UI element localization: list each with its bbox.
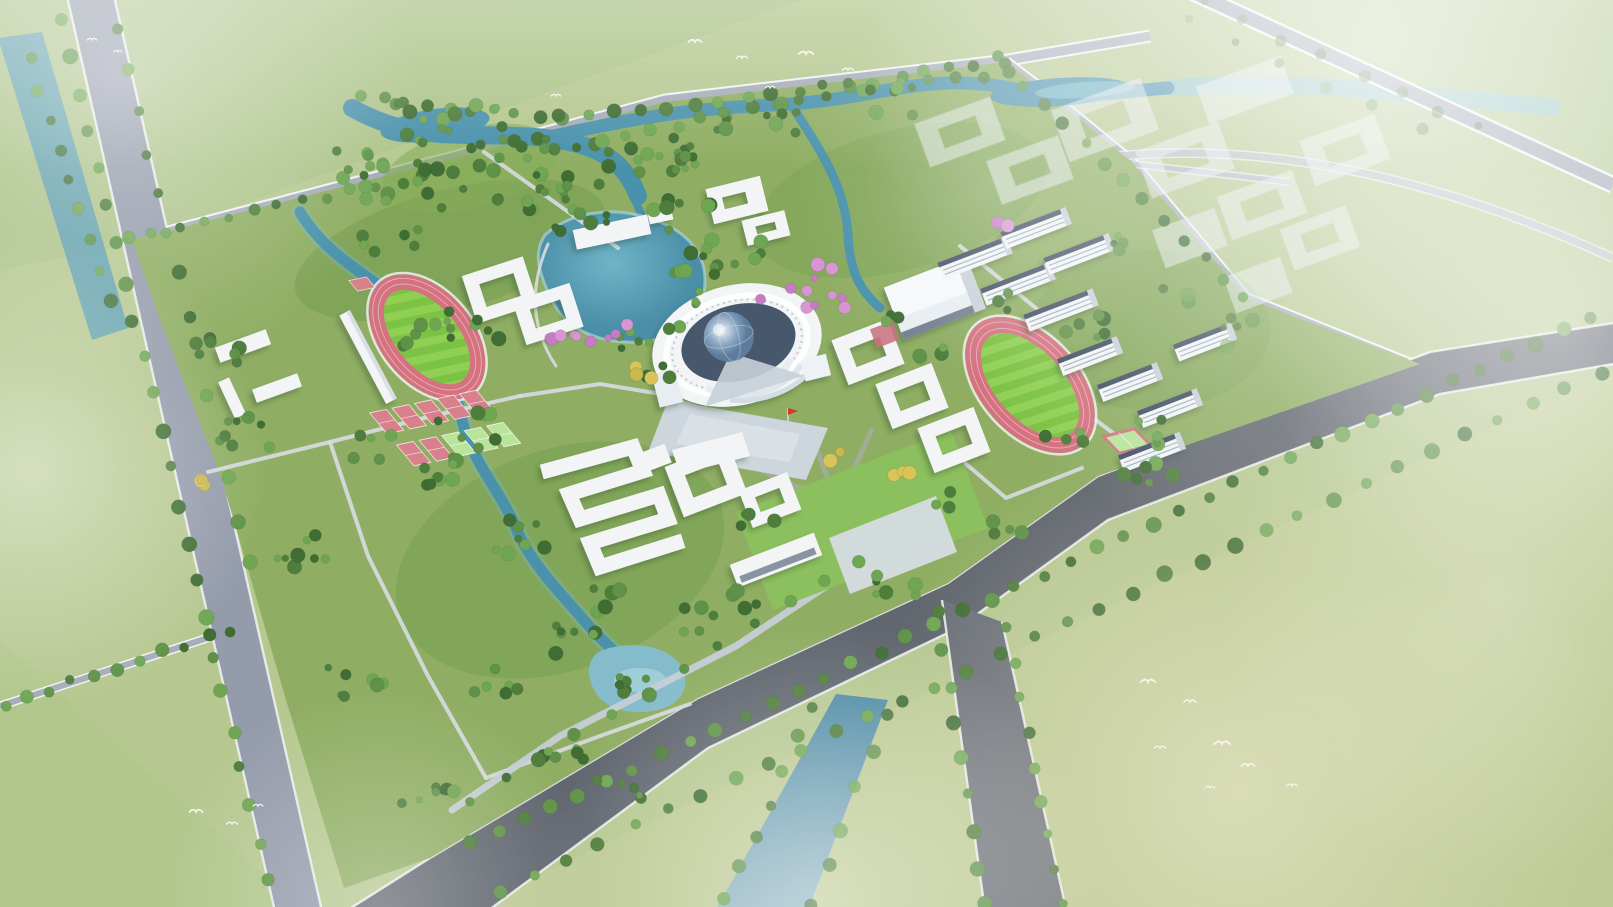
tree [419, 463, 429, 473]
tree [828, 291, 837, 300]
tree [400, 336, 413, 349]
tree [1058, 899, 1067, 907]
tree [493, 825, 506, 838]
tree [1066, 557, 1076, 567]
tree [763, 112, 771, 120]
tree [818, 575, 830, 587]
tree [274, 555, 281, 562]
tree [1152, 431, 1162, 441]
tree [1201, 0, 1209, 5]
tree [522, 196, 533, 207]
tree [570, 628, 578, 636]
tree [1446, 373, 1459, 386]
tree [1391, 460, 1404, 473]
tree [767, 514, 781, 528]
tree [448, 107, 463, 122]
tree [155, 643, 169, 657]
tree [1326, 493, 1341, 508]
tree [1082, 139, 1091, 148]
tree [557, 627, 565, 635]
tree [222, 470, 236, 484]
tree [1218, 274, 1229, 285]
tree [1180, 288, 1195, 303]
tree [810, 301, 818, 309]
tree [1226, 475, 1238, 487]
tree [593, 611, 600, 618]
tree [398, 178, 409, 189]
tree [659, 200, 674, 215]
tree [694, 111, 706, 123]
tree [849, 781, 861, 793]
tree [231, 515, 246, 530]
tree [551, 224, 559, 232]
tree [986, 515, 1000, 529]
tree [1310, 436, 1323, 449]
tree [360, 171, 369, 180]
tree [1260, 523, 1273, 536]
tree [729, 771, 743, 785]
tree [984, 593, 999, 608]
tree [833, 823, 848, 838]
tree [731, 260, 739, 268]
tree [225, 214, 233, 222]
tree [339, 691, 350, 702]
tree [624, 142, 638, 156]
tree [1, 701, 11, 711]
tree [122, 63, 134, 75]
tree [898, 629, 913, 644]
tree [534, 111, 547, 124]
tree [1365, 414, 1380, 429]
tree [1093, 333, 1101, 341]
tree [1029, 631, 1040, 642]
tree [589, 630, 598, 639]
tree [1098, 158, 1111, 171]
tree [1003, 66, 1016, 79]
tree [776, 765, 788, 777]
tree [122, 231, 135, 244]
tree [73, 89, 86, 102]
tree [642, 688, 657, 703]
tree [1157, 566, 1173, 582]
tree [570, 789, 585, 804]
tree [1001, 622, 1011, 632]
tree [291, 548, 306, 563]
tree [1420, 389, 1434, 403]
tree [674, 122, 685, 133]
tree [959, 665, 974, 680]
tree [1585, 312, 1597, 324]
tree [732, 859, 746, 873]
tree [955, 603, 970, 618]
tree [463, 835, 477, 849]
tree [1275, 58, 1284, 67]
tree [369, 246, 380, 257]
tree [1093, 603, 1106, 616]
tree [484, 326, 492, 334]
tree [1359, 70, 1371, 82]
tree [630, 368, 644, 382]
tree [717, 892, 730, 905]
tree [939, 344, 947, 352]
tree [1061, 434, 1071, 444]
tree [621, 319, 633, 331]
tree [1284, 451, 1297, 464]
tree [447, 785, 460, 798]
tree [104, 294, 118, 308]
tree [978, 896, 993, 907]
tree [1136, 192, 1149, 205]
tree [656, 152, 664, 160]
tree [516, 141, 528, 153]
tree [257, 421, 265, 429]
tree [542, 135, 550, 143]
tree [497, 121, 508, 132]
tree [1292, 511, 1302, 521]
tree [617, 780, 625, 788]
tree [195, 350, 204, 359]
tree [738, 601, 752, 615]
tree [55, 13, 67, 25]
tree [166, 461, 176, 471]
tree [852, 555, 865, 568]
tree [1029, 763, 1041, 775]
tree [466, 143, 476, 153]
tree [1003, 288, 1013, 298]
tree [523, 154, 532, 163]
tree [769, 117, 783, 131]
tree [994, 647, 1008, 661]
tree [434, 417, 443, 426]
tree [399, 230, 409, 240]
tree [603, 219, 610, 226]
tree [348, 452, 360, 464]
tree [669, 133, 679, 143]
tree [620, 131, 630, 141]
tree [429, 318, 441, 330]
tree [944, 486, 956, 498]
tree [494, 885, 508, 899]
tree [1116, 467, 1131, 482]
tree [360, 192, 373, 205]
tree [140, 351, 151, 362]
tree [385, 429, 397, 441]
tree [180, 643, 189, 652]
tree [1126, 587, 1140, 601]
tree [489, 433, 501, 445]
tree [1227, 538, 1243, 554]
tree [1118, 530, 1129, 541]
tree [1557, 322, 1571, 336]
tree [419, 115, 427, 123]
tree [200, 389, 213, 402]
tree [533, 520, 540, 527]
tree [544, 747, 553, 756]
tree [471, 406, 486, 421]
tree [929, 683, 940, 694]
tree [699, 252, 707, 260]
tree [708, 723, 723, 738]
tree [444, 307, 454, 317]
tree [1202, 252, 1211, 261]
tree [1320, 81, 1332, 93]
tree [821, 91, 831, 101]
tree [243, 555, 258, 570]
tree [310, 554, 319, 563]
tree [978, 72, 990, 84]
tree [153, 188, 163, 198]
tree [562, 181, 572, 191]
tree [785, 595, 797, 607]
tree [574, 208, 586, 220]
tree [511, 683, 523, 695]
tree [472, 315, 483, 326]
tree [414, 318, 428, 332]
tree [459, 185, 467, 193]
tree [1146, 517, 1162, 533]
tree [46, 116, 55, 125]
tree [1424, 443, 1440, 459]
tree [635, 104, 647, 116]
tree [694, 601, 708, 615]
tree [55, 145, 67, 157]
tree [1595, 367, 1609, 381]
tree [743, 508, 756, 521]
tree [359, 240, 368, 249]
tree [1458, 427, 1472, 441]
tree [172, 265, 187, 280]
tree [644, 123, 657, 136]
tree [1195, 554, 1211, 570]
tree [1245, 313, 1260, 328]
tree [678, 264, 692, 278]
tree [891, 81, 904, 94]
tree [332, 146, 341, 155]
tree [1475, 122, 1483, 130]
tree [645, 338, 653, 346]
tree [907, 110, 918, 121]
tree [1135, 417, 1143, 425]
tree [413, 176, 423, 186]
tree [1259, 466, 1269, 476]
tree [379, 92, 390, 103]
tree [355, 430, 366, 441]
tree [224, 418, 232, 426]
tree [755, 294, 765, 304]
tree [233, 417, 241, 425]
tree [469, 98, 483, 112]
tree [1050, 865, 1059, 874]
tree [541, 188, 549, 196]
tree [954, 750, 968, 764]
tree [26, 52, 37, 63]
tree [585, 336, 596, 347]
tree [1145, 479, 1153, 487]
tree [1275, 35, 1286, 46]
tree [881, 316, 892, 327]
tree [923, 75, 933, 85]
tree [560, 855, 572, 867]
tree [85, 234, 96, 245]
tree [1131, 474, 1142, 485]
tree [867, 745, 881, 759]
tree [403, 105, 418, 120]
tree [552, 109, 565, 122]
tree [583, 216, 598, 231]
tree [365, 161, 375, 171]
tree [1238, 292, 1248, 302]
tree [1232, 38, 1240, 46]
tree [1233, 322, 1241, 330]
tree [1093, 310, 1105, 322]
tree [692, 297, 700, 305]
tree [184, 311, 196, 323]
tree [811, 274, 818, 281]
tree [791, 729, 805, 743]
tree [730, 584, 745, 599]
tree [590, 584, 598, 592]
tree [1023, 727, 1035, 739]
tree [119, 277, 134, 292]
tree [374, 454, 385, 465]
tree [229, 726, 242, 739]
tree [634, 337, 642, 345]
tree [612, 583, 627, 598]
tree [684, 246, 698, 260]
tree [636, 792, 643, 799]
tree [571, 747, 583, 759]
tree [421, 187, 434, 200]
tree [298, 195, 307, 204]
tree [1179, 236, 1190, 247]
tree [931, 500, 941, 510]
tree [689, 98, 703, 112]
tree [672, 165, 681, 174]
tree [88, 670, 100, 682]
tree [838, 294, 847, 303]
tree [1038, 98, 1051, 111]
tree [1015, 526, 1029, 540]
tree [533, 171, 541, 179]
tree [175, 223, 185, 233]
tree [572, 331, 581, 340]
tree [182, 537, 197, 552]
tree [421, 100, 433, 112]
tree [718, 107, 729, 118]
tree [592, 775, 602, 785]
tree [754, 235, 768, 249]
tree [766, 696, 781, 711]
tree [908, 83, 916, 91]
tree [594, 179, 605, 190]
tree [896, 695, 908, 707]
tree [795, 744, 808, 757]
tree [1139, 461, 1151, 473]
tree [125, 315, 138, 328]
tree [807, 702, 818, 713]
tree [400, 128, 414, 142]
tree [830, 724, 844, 738]
tree [190, 337, 203, 350]
tree [645, 371, 659, 385]
tree [418, 138, 427, 147]
tree [1113, 243, 1126, 256]
tree [555, 330, 567, 342]
tree [1204, 493, 1214, 503]
tree [879, 585, 893, 599]
tree [93, 163, 104, 174]
tree [219, 430, 230, 441]
tree [490, 664, 500, 674]
tree [502, 773, 511, 782]
tree [1043, 829, 1052, 838]
tree [549, 646, 564, 661]
tree [567, 728, 580, 741]
tree [611, 329, 621, 339]
tree [1158, 215, 1170, 227]
tree [344, 183, 355, 194]
tree [1114, 232, 1122, 240]
tree [486, 164, 500, 178]
tree [598, 600, 613, 615]
tree [1527, 397, 1540, 410]
tree [377, 160, 390, 173]
tree [340, 669, 351, 680]
tree [500, 687, 512, 699]
tree [663, 803, 673, 813]
tree [1117, 173, 1130, 186]
tree [325, 664, 332, 671]
tree [1014, 692, 1024, 702]
tree [492, 546, 500, 554]
tree [363, 150, 374, 161]
tree [1062, 616, 1073, 627]
tree [446, 166, 459, 179]
tree [881, 709, 893, 721]
tree [992, 295, 1004, 307]
tree [873, 590, 880, 597]
tree [818, 673, 829, 684]
tree [709, 269, 720, 280]
tree [989, 528, 1001, 540]
tree [1034, 795, 1047, 808]
tree [750, 619, 760, 629]
tree [590, 838, 604, 852]
tree [200, 217, 209, 226]
tree [112, 24, 123, 35]
tree [539, 144, 549, 154]
tree [100, 199, 112, 211]
tree [476, 140, 486, 150]
tree [213, 684, 227, 698]
tree [409, 241, 419, 251]
tree [1474, 364, 1486, 376]
tree [869, 105, 884, 120]
tree [696, 288, 703, 295]
tree [654, 745, 669, 760]
tree [208, 652, 219, 663]
tree [903, 466, 917, 480]
tree [791, 128, 801, 138]
tree [694, 789, 708, 803]
tree [492, 104, 500, 112]
tree [437, 203, 446, 212]
tree [146, 228, 156, 238]
tree [321, 555, 330, 564]
tree [893, 312, 905, 324]
tree [191, 574, 204, 587]
tree [543, 799, 558, 814]
